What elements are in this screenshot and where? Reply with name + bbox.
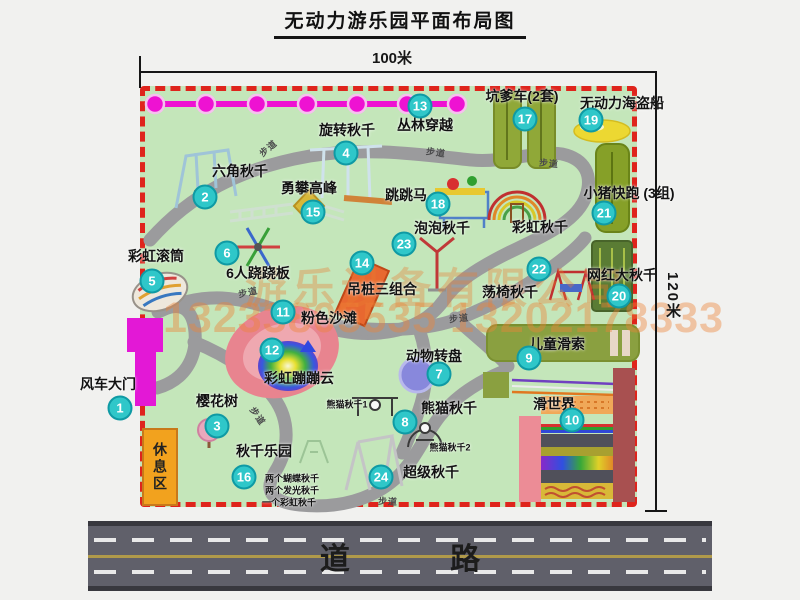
road: 道 路 [88,521,712,591]
screenshot-root: 无动力游乐园平面布局图 100米 120米 [0,0,800,600]
rest-area-label: 休息区 [150,442,170,493]
facility-1-badge: 1 [108,396,133,421]
dimension-tick-bottom [645,510,667,512]
dimension-line-top [140,71,657,73]
page-title: 无动力游乐园平面布局图 [274,6,525,39]
rest-area-zone: 休息区 [142,428,178,506]
facility-1-label: 风车大门 [80,374,136,394]
dimension-width-label: 100米 [372,47,412,68]
dimension-line-right [655,71,657,512]
park-map-area [140,86,637,507]
road-label: 道 路 [88,526,712,586]
title-bar: 无动力游乐园平面布局图 [0,6,800,39]
dimension-tick-left [139,56,141,88]
dimension-height-label: 120米 [662,272,683,320]
